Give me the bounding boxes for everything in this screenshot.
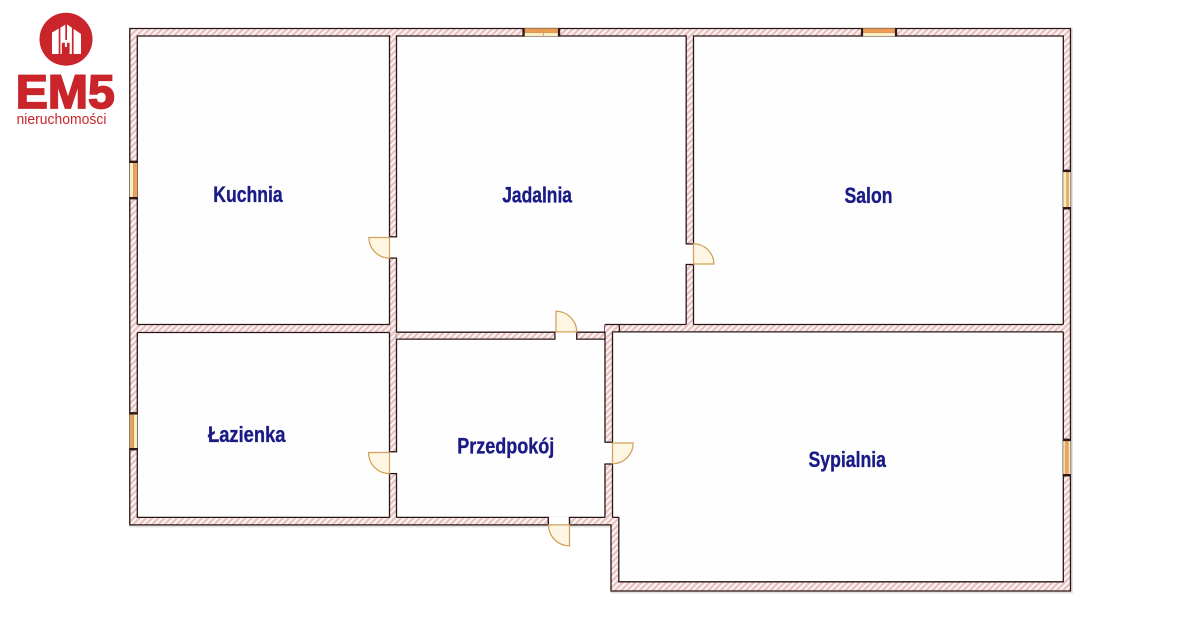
svg-text:nieruchomości: nieruchomości [17,111,107,128]
svg-text:Salon: Salon [845,183,893,208]
svg-text:Sypialnia: Sypialnia [809,447,887,472]
svg-text:Kuchnia: Kuchnia [213,182,283,207]
svg-text:Jadalnia: Jadalnia [502,183,572,208]
svg-text:Łazienka: Łazienka [208,422,286,447]
svg-text:Przedpokój: Przedpokój [457,433,554,458]
